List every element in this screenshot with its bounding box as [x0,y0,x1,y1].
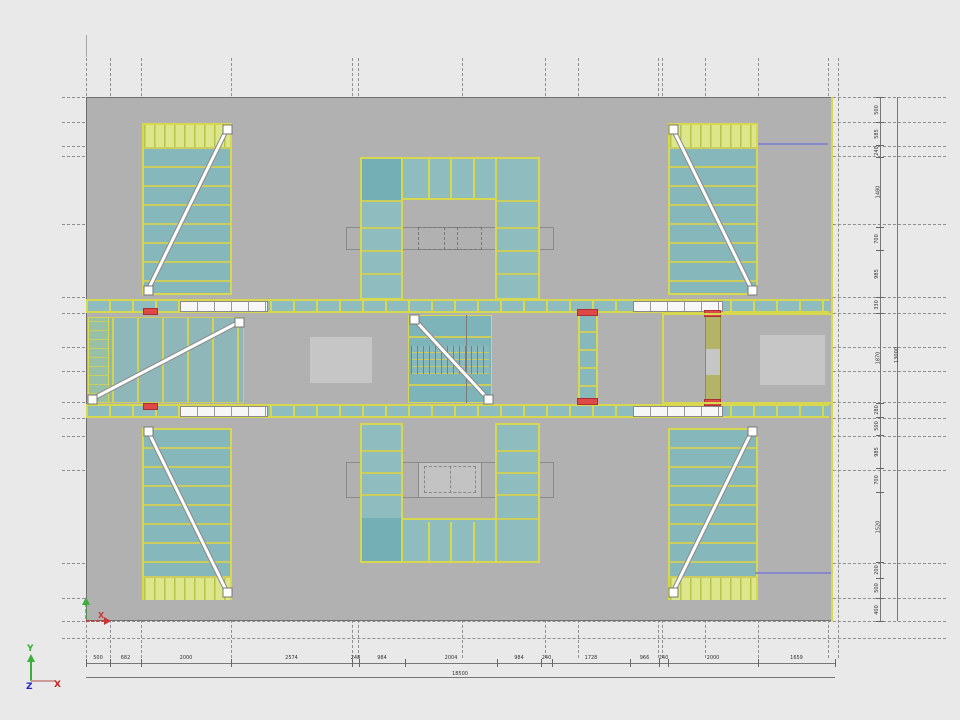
dimension-value: 700 [874,475,880,485]
dimension-tick [231,659,232,667]
dimension-value: 985 [874,447,880,457]
dimension-value: 985 [874,269,880,279]
dimension-value: 984 [377,655,387,661]
shaft-door[interactable] [577,398,598,405]
room-divider [497,273,538,275]
dimension-value: 500 [93,655,103,661]
dimension-tick [110,659,111,667]
dimension-value: 1520 [875,521,881,534]
dimension-value: 2000 [180,655,193,661]
room-divider [428,159,430,198]
shaft-door[interactable] [577,309,598,316]
dimension-value: 1480 [875,186,881,199]
dimension-value: 585 [874,129,880,139]
dimension-tick [876,403,884,404]
dimension-tick [876,578,884,579]
ucs-x-label: X [98,611,104,620]
ramp-run[interactable] [88,317,244,403]
dimension-tick [876,621,884,622]
dimension-total-label: 13000 [894,347,900,363]
stair-treads [144,149,230,293]
dimension-value: 2000 [707,655,720,661]
void-divider [457,227,458,250]
dimension-tick [876,122,884,123]
dimension-value: 240 [874,146,880,156]
dimension-total-label: 18500 [452,671,468,677]
dimension-total-bottom[interactable] [86,677,835,678]
room-divider [497,518,538,520]
room-row[interactable] [403,518,495,563]
dimension-tick [876,435,884,436]
dimension-value: 500 [874,105,880,115]
dimension-tick [405,659,406,667]
room-divider [428,522,430,561]
dimension-tick [876,468,884,469]
room-divider [497,200,538,202]
room-divider [497,250,538,252]
dimension-chain-bottom[interactable] [86,663,835,664]
dimension-tick [141,659,142,667]
dimension-value: 966 [640,655,650,661]
dimension-value: 984 [514,655,524,661]
dimension-value: 330 [874,300,880,310]
grid-line-horizontal [62,638,946,639]
dimension-tick [552,659,553,667]
room-divider [497,472,538,474]
room-divider [362,200,401,202]
door-marker[interactable] [143,308,158,315]
room-row[interactable] [403,157,495,200]
room-divider [497,227,538,229]
room-cell-dark [362,518,401,561]
dimension-tick [876,227,884,228]
room-divider [450,522,452,561]
lift-shaft-left[interactable] [88,317,109,403]
dimension-value: 682 [121,655,131,661]
reference-line-purple[interactable] [755,572,833,574]
sheet-edge-mark [86,35,87,57]
room-divider [497,494,538,496]
glazing-strip[interactable] [180,301,268,312]
dimension-value: 1728 [585,655,598,661]
stair-landing [670,576,756,600]
floor-void [760,335,825,385]
reference-line-purple[interactable] [758,143,828,145]
room-divider [362,227,401,229]
shaft-ladder[interactable] [578,313,598,403]
room-column[interactable] [495,423,540,563]
axis-z-label: Z [26,683,33,692]
door-marker[interactable] [143,403,158,410]
stair-treads [670,149,756,293]
dimension-value: 1870 [875,352,881,365]
room-column[interactable] [360,157,403,300]
dimension-tick [876,97,884,98]
room-divider [473,159,475,198]
dimension-tick [876,417,884,418]
cad-viewport[interactable]: 5006822000257424898420049842401728966240… [0,0,960,720]
grid-line-horizontal [62,621,946,622]
dimension-value: 500 [874,421,880,431]
void-outline-top [418,227,482,250]
room-cell-dark [362,159,401,200]
room-divider [450,159,452,198]
dimension-tick [835,659,836,667]
dimension-value: 500 [874,583,880,593]
dimension-tick [876,598,884,599]
room-divider [362,494,401,496]
dimension-value: 1659 [790,655,803,661]
dimension-value: 200 [874,565,880,575]
court-room-divider [450,466,451,493]
dimension-tick [758,659,759,667]
axis-x-label: X [54,681,61,690]
dimension-tick [876,297,884,298]
room-divider [362,472,401,474]
glazing-strip[interactable] [633,406,723,417]
room-divider [362,250,401,252]
core-divider [466,315,467,403]
dimension-value: 700 [874,234,880,244]
stair-landing [144,576,230,600]
court-room[interactable] [418,462,482,498]
dimension-value: 2574 [285,655,298,661]
dimension-tick [86,659,87,667]
void-divider [444,227,445,250]
stair-core-bottom-right[interactable] [668,428,758,600]
room-divider [362,450,401,452]
grid-line-vertical [838,58,839,658]
floor-void [310,337,372,383]
stair-core-top-left[interactable] [142,123,232,295]
dimension-value: 280 [874,405,880,415]
dimension-value: 240 [542,655,552,661]
axis-gizmo-icon [27,654,56,681]
dimension-value: 248 [351,655,361,661]
stair-core-top-right[interactable] [668,123,758,295]
stair-treads [670,430,756,576]
dimension-tick [497,659,498,667]
core-line [408,384,492,386]
core-line [408,336,492,338]
dimension-tick [876,562,884,563]
room-divider [362,273,401,275]
stair-core-bottom-left[interactable] [142,428,232,600]
room-divider [497,450,538,452]
dimension-tick [876,313,884,314]
dimension-tick [876,492,884,493]
core-hatch [411,346,489,374]
stair-treads [144,430,230,576]
axis-y-label: Y [27,645,34,654]
dimension-tick [630,659,631,667]
stair-landing [144,125,230,149]
dimension-value: 400 [874,605,880,615]
room-divider [473,522,475,561]
dimension-tick [876,250,884,251]
dimension-tick [876,157,884,158]
edge-wall-line [831,97,833,621]
stair-landing [670,125,756,149]
room-column[interactable] [360,423,403,563]
glazing-strip[interactable] [180,406,268,417]
dimension-value: 2004 [445,655,458,661]
dimension-value: 240 [659,655,669,661]
room-column[interactable] [495,157,540,300]
